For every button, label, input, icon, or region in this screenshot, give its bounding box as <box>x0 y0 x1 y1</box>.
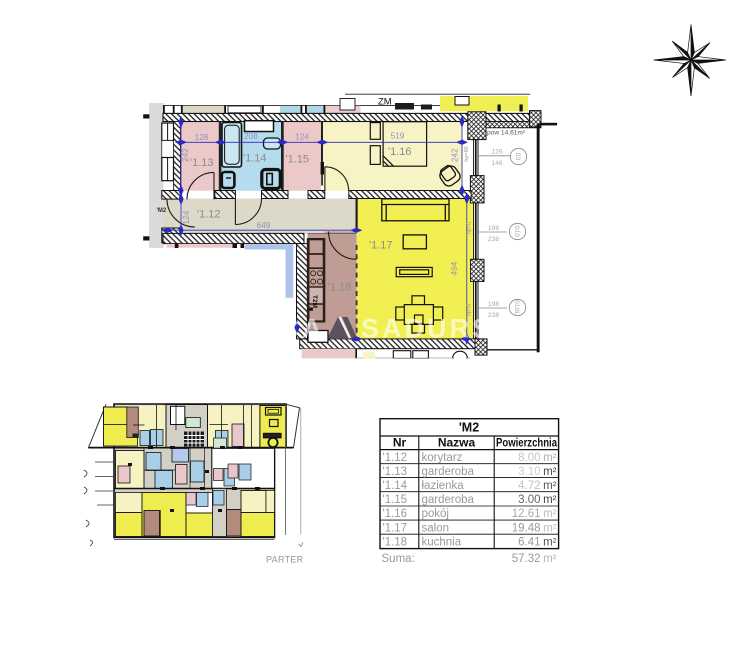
svg-text:19.48: 19.48 <box>512 522 541 534</box>
svg-text:kuchnia: kuchnia <box>422 537 462 549</box>
svg-text:m²: m² <box>543 466 557 478</box>
svg-text:6.41: 6.41 <box>518 537 540 549</box>
svg-text:m²: m² <box>543 508 557 520</box>
svg-text:12.61: 12.61 <box>512 508 541 520</box>
svg-text:'1.17: '1.17 <box>369 240 393 252</box>
svg-text:'1.16: '1.16 <box>388 146 412 158</box>
svg-text:03: 03 <box>514 153 521 161</box>
svg-text:649: 649 <box>257 221 271 230</box>
svg-text:010: 010 <box>513 226 520 238</box>
svg-text:m²: m² <box>543 452 557 464</box>
svg-text:Suma:: Suma: <box>382 553 415 565</box>
svg-text:ZM: ZM <box>378 97 392 108</box>
svg-text:m²: m² <box>543 480 557 492</box>
svg-text:'1.14: '1.14 <box>383 480 408 492</box>
svg-text:T2M: T2M <box>311 295 318 308</box>
svg-text:'M2: 'M2 <box>459 421 479 435</box>
svg-text:198: 198 <box>488 301 500 308</box>
svg-text:'1.15: '1.15 <box>383 494 408 506</box>
svg-text:238: 238 <box>488 236 500 243</box>
svg-text:8.00: 8.00 <box>518 452 540 464</box>
svg-text:hp=0: hp=0 <box>467 222 473 234</box>
svg-text:'1.13: '1.13 <box>190 157 214 169</box>
svg-text:garderoba: garderoba <box>422 494 475 506</box>
svg-text:'1.13: '1.13 <box>383 466 408 478</box>
svg-text:'M2: 'M2 <box>157 208 167 214</box>
svg-text:korytarz: korytarz <box>422 452 463 464</box>
svg-text:242: 242 <box>181 148 190 162</box>
svg-text:4.72: 4.72 <box>518 480 540 492</box>
svg-text:3.00: 3.00 <box>518 494 540 506</box>
svg-text:128: 128 <box>195 133 209 142</box>
svg-text:PARTER: PARTER <box>266 555 304 565</box>
svg-text:'1.12: '1.12 <box>383 452 408 464</box>
svg-text:146: 146 <box>491 160 503 167</box>
svg-text:'1.18: '1.18 <box>328 282 352 294</box>
svg-text:garderoba: garderoba <box>422 466 475 478</box>
svg-text:m²: m² <box>543 494 557 506</box>
svg-text:Nazwa: Nazwa <box>438 436 476 450</box>
svg-text:pow 14.61m²: pow 14.61m² <box>487 130 526 137</box>
svg-text:Powierzchnia: Powierzchnia <box>496 436 557 450</box>
svg-text:126: 126 <box>491 149 503 156</box>
svg-text:208: 208 <box>244 132 258 141</box>
svg-text:Nr: Nr <box>393 436 407 450</box>
svg-text:m²: m² <box>543 537 557 549</box>
svg-text:hp=80: hp=80 <box>464 146 470 161</box>
svg-text:57.32: 57.32 <box>512 553 541 565</box>
svg-text:124: 124 <box>295 132 309 141</box>
svg-text:'1.17: '1.17 <box>383 522 408 534</box>
svg-text:'1.12: '1.12 <box>197 209 221 221</box>
svg-text:198: 198 <box>488 225 500 232</box>
svg-text:519: 519 <box>391 132 405 141</box>
svg-text:pokój: pokój <box>422 508 450 520</box>
svg-text:'1.14: '1.14 <box>243 153 267 165</box>
svg-text:'1.15: '1.15 <box>286 154 310 166</box>
svg-text:'1.16: '1.16 <box>383 508 408 520</box>
svg-text:494: 494 <box>450 261 459 275</box>
svg-text:124: 124 <box>182 210 191 224</box>
svg-text:m²: m² <box>543 553 557 565</box>
svg-text:'1.18: '1.18 <box>383 537 408 549</box>
svg-text:salon: salon <box>422 522 450 534</box>
svg-text:CA: CA <box>280 314 325 344</box>
svg-text:łazienka: łazienka <box>422 480 465 492</box>
svg-text:242: 242 <box>451 148 460 162</box>
svg-text:SADURSCY: SADURSCY <box>361 314 537 344</box>
svg-text:3.10: 3.10 <box>518 466 540 478</box>
svg-text:m²: m² <box>543 522 557 534</box>
